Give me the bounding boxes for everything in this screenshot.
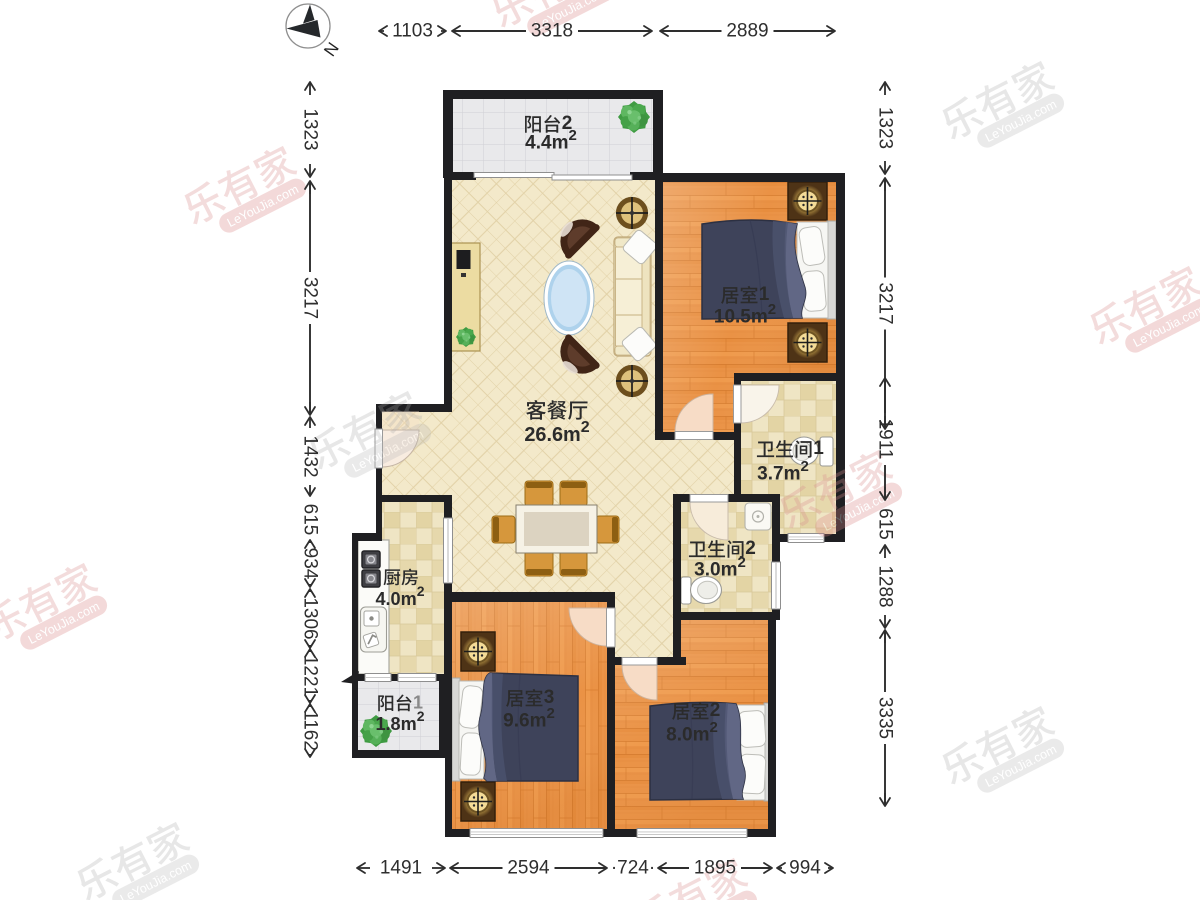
svg-text:1911: 1911 [875,419,896,460]
svg-text:2: 2 [745,538,756,559]
svg-text:2889: 2889 [726,21,768,42]
svg-text:1162: 1162 [300,710,321,751]
svg-text:·724·: ·724· [611,858,655,879]
svg-text:1288: 1288 [875,565,896,607]
svg-text:3318: 3318 [531,21,573,42]
svg-text:3335: 3335 [875,697,896,739]
svg-text:1103: 1103 [392,21,433,42]
svg-text:1323: 1323 [300,108,321,150]
svg-text:1323: 1323 [875,107,896,149]
svg-text:615: 615 [300,504,321,536]
svg-text:2594: 2594 [507,858,550,879]
svg-text:615: 615 [875,508,896,540]
svg-text:1306: 1306 [300,597,321,639]
svg-text:3217: 3217 [300,277,321,319]
svg-text:934: 934 [300,548,321,580]
svg-text:1221: 1221 [300,655,321,697]
svg-text:1491: 1491 [380,858,422,879]
svg-text:1895: 1895 [694,858,736,879]
svg-text:1: 1 [813,438,824,459]
svg-text:1432: 1432 [300,435,321,477]
svg-text:994: 994 [789,858,821,879]
svg-text:3217: 3217 [875,282,896,324]
